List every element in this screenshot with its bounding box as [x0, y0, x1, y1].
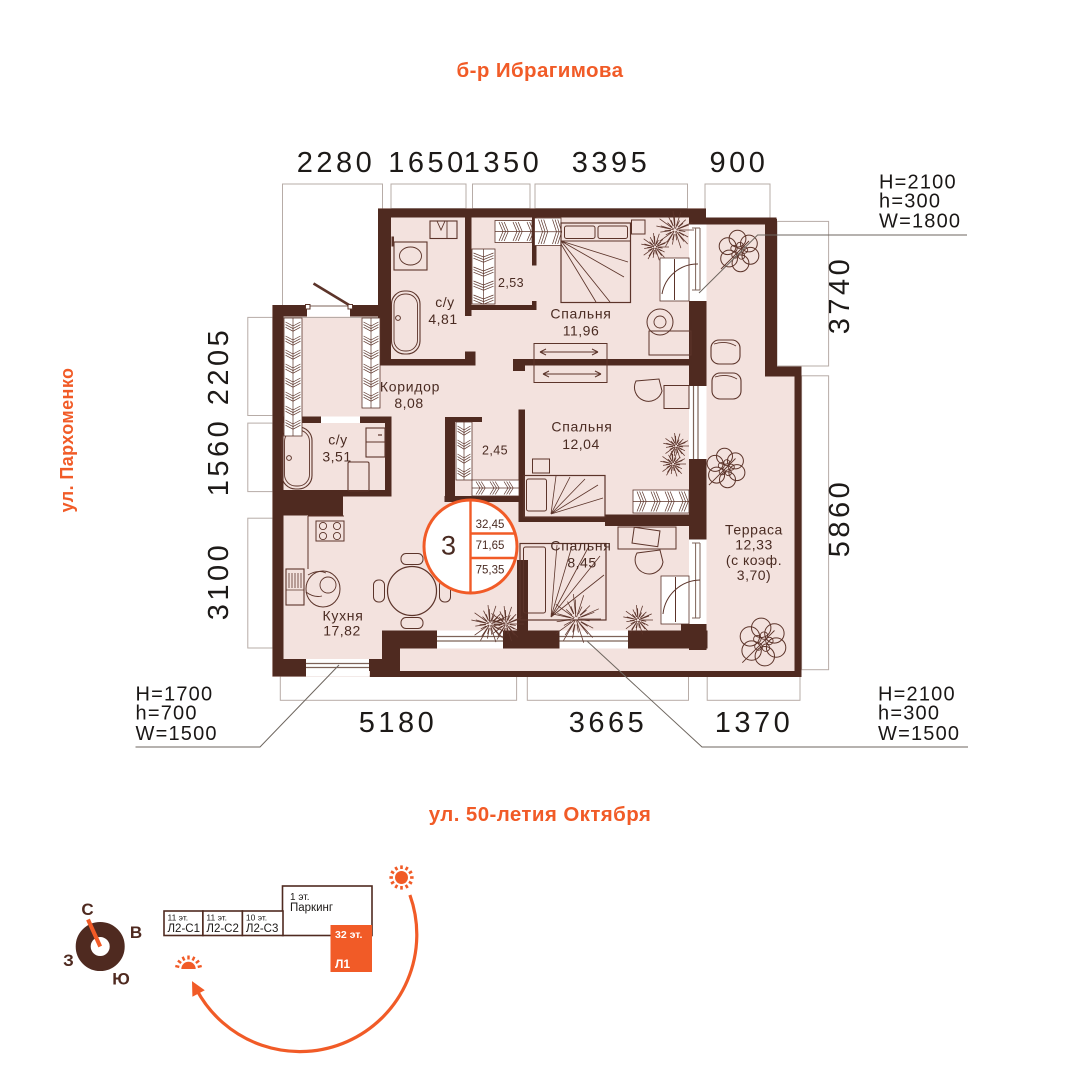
svg-text:11,96: 11,96: [563, 323, 600, 339]
svg-text:1350: 1350: [464, 147, 543, 179]
svg-text:8,45: 8,45: [567, 555, 596, 571]
svg-text:Коридор: Коридор: [380, 379, 440, 395]
svg-text:В: В: [130, 923, 142, 942]
svg-text:Терраса: Терраса: [725, 522, 783, 538]
svg-text:ул. Пархоменко: ул. Пархоменко: [57, 368, 77, 513]
svg-text:Спальня: Спальня: [550, 306, 611, 322]
svg-text:10 эт.: 10 эт.: [246, 913, 267, 923]
svg-text:1370: 1370: [715, 707, 794, 739]
svg-text:2205: 2205: [203, 327, 235, 406]
svg-text:h=300: h=300: [879, 191, 941, 213]
svg-text:Л2-С1: Л2-С1: [168, 923, 200, 935]
svg-text:1560: 1560: [203, 418, 235, 497]
svg-text:8,08: 8,08: [394, 395, 423, 411]
svg-text:3,70): 3,70): [737, 567, 771, 583]
svg-text:11 эт.: 11 эт.: [206, 913, 227, 923]
svg-text:Паркинг: Паркинг: [290, 902, 333, 914]
svg-text:W=1500: W=1500: [878, 723, 960, 745]
svg-text:Л2-С3: Л2-С3: [246, 923, 278, 935]
svg-text:5860: 5860: [824, 479, 856, 558]
svg-text:W=1500: W=1500: [136, 723, 218, 745]
svg-text:Спальня: Спальня: [550, 538, 611, 554]
svg-text:с/у: с/у: [435, 294, 454, 310]
svg-text:32,45: 32,45: [476, 519, 505, 531]
svg-text:Л1: Л1: [335, 957, 350, 971]
svg-text:17,82: 17,82: [323, 623, 361, 639]
svg-text:Л2-С2: Л2-С2: [206, 923, 238, 935]
svg-text:ул. 50-летия Октября: ул. 50-летия Октября: [429, 803, 651, 826]
svg-text:71,65: 71,65: [476, 540, 505, 552]
svg-text:12,04: 12,04: [562, 436, 600, 452]
svg-text:h=700: h=700: [136, 703, 198, 725]
svg-text:3,51: 3,51: [322, 449, 351, 465]
svg-text:Кухня: Кухня: [323, 608, 364, 624]
svg-text:3665: 3665: [569, 707, 648, 739]
svg-text:Спальня: Спальня: [551, 419, 612, 435]
svg-text:б-р Ибрагимова: б-р Ибрагимова: [457, 59, 624, 82]
svg-text:С: С: [81, 900, 93, 919]
svg-text:12,33: 12,33: [735, 537, 773, 553]
svg-text:W=1800: W=1800: [879, 211, 961, 233]
svg-text:3100: 3100: [203, 542, 235, 621]
svg-text:75,35: 75,35: [476, 565, 505, 577]
svg-text:11 эт.: 11 эт.: [168, 913, 189, 923]
svg-text:5180: 5180: [359, 707, 438, 739]
svg-text:Ю: Ю: [112, 970, 130, 989]
svg-text:2,53: 2,53: [498, 276, 524, 290]
svg-text:900: 900: [710, 147, 769, 179]
svg-text:(с коэф.: (с коэф.: [726, 552, 782, 568]
svg-text:3395: 3395: [572, 147, 651, 179]
svg-text:h=300: h=300: [878, 703, 940, 725]
svg-text:32 эт.: 32 эт.: [335, 929, 362, 941]
svg-text:2280: 2280: [297, 147, 376, 179]
svg-text:3740: 3740: [824, 256, 856, 335]
svg-text:1650: 1650: [388, 147, 467, 179]
svg-text:З: З: [63, 951, 74, 970]
svg-text:2,45: 2,45: [482, 444, 508, 458]
svg-text:4,81: 4,81: [428, 311, 457, 327]
svg-text:с/у: с/у: [328, 432, 347, 448]
svg-text:3: 3: [441, 531, 456, 561]
